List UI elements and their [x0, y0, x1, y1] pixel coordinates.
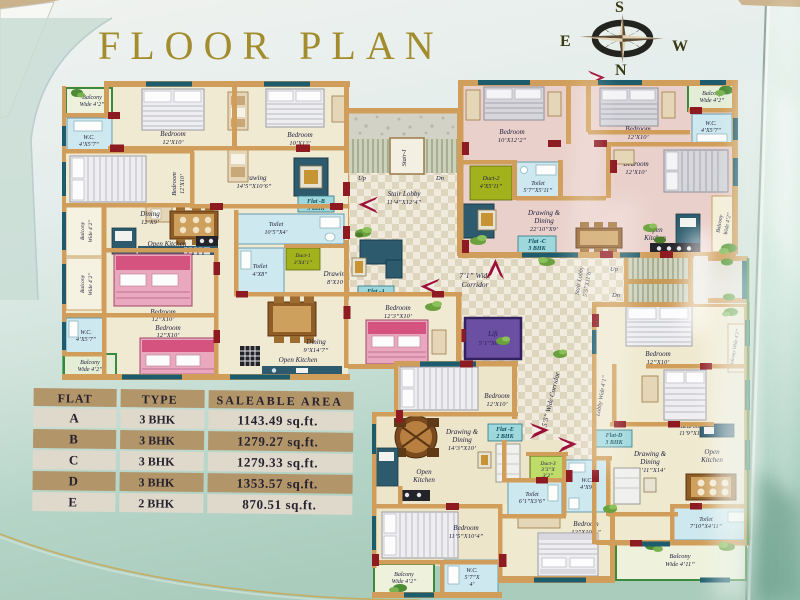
svg-text:Open: Open — [416, 468, 432, 476]
svg-text:Wide 4’11”: Wide 4’11” — [665, 561, 695, 568]
svg-text:1279.27 sq.ft.: 1279.27 sq.ft. — [237, 433, 319, 449]
svg-text:Stair Lobby: Stair Lobby — [388, 190, 422, 198]
svg-text:Wide 4’2”: Wide 4’2” — [700, 97, 725, 104]
svg-text:4’X5’7”: 4’X5’7” — [76, 336, 97, 343]
svg-text:1279.33 sq.ft.: 1279.33 sq.ft. — [237, 454, 319, 470]
svg-text:Duct-2: Duct-2 — [482, 176, 500, 182]
svg-text:3 BHK: 3 BHK — [527, 246, 546, 252]
svg-text:Bedroom: Bedroom — [287, 131, 312, 139]
svg-text:Bedroom: Bedroom — [453, 524, 478, 532]
svg-text:Duct-1: Duct-1 — [294, 253, 311, 259]
svg-text:Bedroom: Bedroom — [160, 130, 185, 138]
svg-text:4’X5’7”: 4’X5’7” — [79, 141, 100, 148]
svg-text:3 BHK: 3 BHK — [139, 475, 176, 489]
svg-text:11’5”X10’4”: 11’5”X10’4” — [449, 533, 484, 540]
svg-text:Dining: Dining — [305, 338, 326, 346]
svg-text:Bedroom: Bedroom — [171, 172, 178, 196]
svg-text:Drawing &: Drawing & — [633, 450, 667, 458]
svg-text:Balcony: Balcony — [669, 553, 690, 560]
svg-text:3 BHK: 3 BHK — [139, 433, 176, 447]
svg-text:Dining: Dining — [139, 210, 160, 218]
svg-text:870.51 sq.ft.: 870.51 sq.ft. — [242, 497, 316, 513]
svg-text:Bedroom: Bedroom — [499, 128, 524, 136]
svg-text:1353.57 sq.ft.: 1353.57 sq.ft. — [237, 475, 319, 491]
svg-text:FLAT: FLAT — [58, 391, 93, 405]
svg-text:14’5”X10’6”: 14’5”X10’6” — [236, 183, 271, 190]
svg-text:Bedroom: Bedroom — [484, 392, 509, 400]
svg-text:W.C.: W.C. — [83, 135, 94, 141]
svg-text:1143.49 sq.ft.: 1143.49 sq.ft. — [237, 412, 318, 428]
svg-text:W: W — [672, 38, 688, 55]
svg-text:W.C.: W.C. — [581, 478, 592, 484]
svg-text:W.C.: W.C. — [705, 121, 716, 127]
svg-text:Bedroom: Bedroom — [385, 304, 410, 312]
svg-text:N: N — [615, 62, 627, 79]
svg-text:Kitchen: Kitchen — [412, 476, 435, 484]
svg-text:Dining: Dining — [533, 217, 554, 225]
svg-text:Balcony: Balcony — [82, 95, 102, 101]
svg-text:Dining: Dining — [451, 436, 472, 444]
svg-text:Open Kitchen: Open Kitchen — [279, 356, 318, 364]
svg-text:Wide 4’2”: Wide 4’2” — [87, 273, 94, 296]
svg-text:6’1”X3’6”: 6’1”X3’6” — [519, 499, 546, 505]
svg-text:FLOOR PLAN: FLOOR PLAN — [98, 23, 444, 68]
svg-text:E: E — [68, 494, 77, 509]
svg-text:W.C.: W.C. — [466, 568, 477, 574]
svg-text:W.C.: W.C. — [80, 330, 91, 336]
svg-text:Toilet: Toilet — [699, 517, 713, 523]
svg-text:Balcony: Balcony — [80, 221, 86, 240]
svg-text:5’7”X: 5’7”X — [465, 575, 480, 581]
svg-text:Toilet: Toilet — [525, 492, 539, 498]
svg-text:12’3”X10’: 12’3”X10’ — [384, 313, 412, 320]
svg-text:S: S — [615, 0, 624, 16]
svg-text:12’X10’: 12’X10’ — [162, 139, 183, 146]
svg-text:Flat -E: Flat -E — [496, 427, 514, 433]
svg-text:Wide 4’2”: Wide 4’2” — [78, 366, 103, 373]
svg-text:A: A — [69, 410, 79, 425]
svg-text:10’5”X4’: 10’5”X4’ — [265, 229, 288, 236]
svg-text:12’X10’: 12’X10’ — [180, 174, 186, 194]
svg-text:Open Kitchen: Open Kitchen — [148, 240, 187, 248]
svg-text:Drawing &: Drawing & — [527, 209, 561, 217]
svg-text:Corridor: Corridor — [461, 280, 488, 289]
svg-text:3 BHK: 3 BHK — [139, 454, 176, 468]
svg-text:E: E — [560, 33, 571, 50]
svg-text:TYPE: TYPE — [142, 392, 178, 406]
svg-text:Bedroom: Bedroom — [155, 324, 180, 332]
svg-text:B: B — [69, 431, 78, 446]
svg-text:12’X10’: 12’X10’ — [625, 169, 646, 176]
svg-text:Toilet: Toilet — [531, 181, 545, 187]
svg-text:10’X12’2”: 10’X12’2” — [498, 137, 527, 144]
svg-text:4’X8”: 4’X8” — [253, 271, 269, 278]
svg-text:12’X10’: 12’X10’ — [486, 401, 507, 408]
svg-text:12’X9’: 12’X9’ — [141, 219, 159, 226]
svg-text:2 BHK: 2 BHK — [138, 496, 175, 510]
svg-text:Dn: Dn — [435, 175, 444, 182]
svg-text:Balcony: Balcony — [394, 572, 414, 578]
svg-text:Up: Up — [358, 175, 367, 182]
svg-text:4’X9’: 4’X9’ — [580, 484, 594, 491]
svg-text:9’X14’7”: 9’X14’7” — [304, 347, 329, 354]
svg-text:14’3”X10’: 14’3”X10’ — [448, 445, 476, 452]
svg-text:Dining: Dining — [639, 458, 660, 466]
svg-text:D: D — [69, 473, 79, 488]
svg-text:4’: 4’ — [470, 581, 475, 588]
svg-text:3 BHK: 3 BHK — [139, 412, 176, 426]
svg-text:4’X5’7”: 4’X5’7” — [701, 127, 722, 134]
svg-text:2 BHK: 2 BHK — [495, 434, 514, 440]
svg-text:Bedroom: Bedroom — [645, 350, 670, 358]
svg-text:Balcony: Balcony — [80, 274, 86, 293]
svg-text:Drawing &: Drawing & — [445, 428, 479, 436]
svg-text:Wide 4’2”: Wide 4’2” — [87, 220, 94, 243]
svg-text:Flat -C: Flat -C — [528, 239, 547, 245]
svg-text:Wide 4’2”: Wide 4’2” — [80, 101, 105, 108]
svg-text:C: C — [69, 452, 79, 467]
svg-text:Toilet: Toilet — [269, 221, 284, 228]
svg-text:Toilet: Toilet — [253, 263, 268, 270]
svg-text:Stair-I: Stair-I — [401, 149, 408, 167]
svg-text:5’7”X5’11”: 5’7”X5’11” — [524, 188, 554, 194]
svg-text:Balcony: Balcony — [80, 360, 100, 366]
svg-text:3’X4’1”: 3’X4’1” — [293, 259, 312, 266]
svg-text:Lift: Lift — [487, 330, 499, 338]
svg-text:11’4”X12’4”: 11’4”X12’4” — [387, 199, 422, 206]
svg-text:Wide 4’2”: Wide 4’2” — [392, 578, 417, 585]
svg-text:4’X5’11”: 4’X5’11” — [480, 183, 503, 190]
svg-text:SALEABLE AREA: SALEABLE AREA — [217, 393, 344, 409]
svg-text:22’10”X9’: 22’10”X9’ — [530, 226, 558, 233]
svg-text:8’X10’: 8’X10’ — [327, 279, 345, 286]
svg-text:12’X10’: 12’X10’ — [627, 134, 648, 141]
